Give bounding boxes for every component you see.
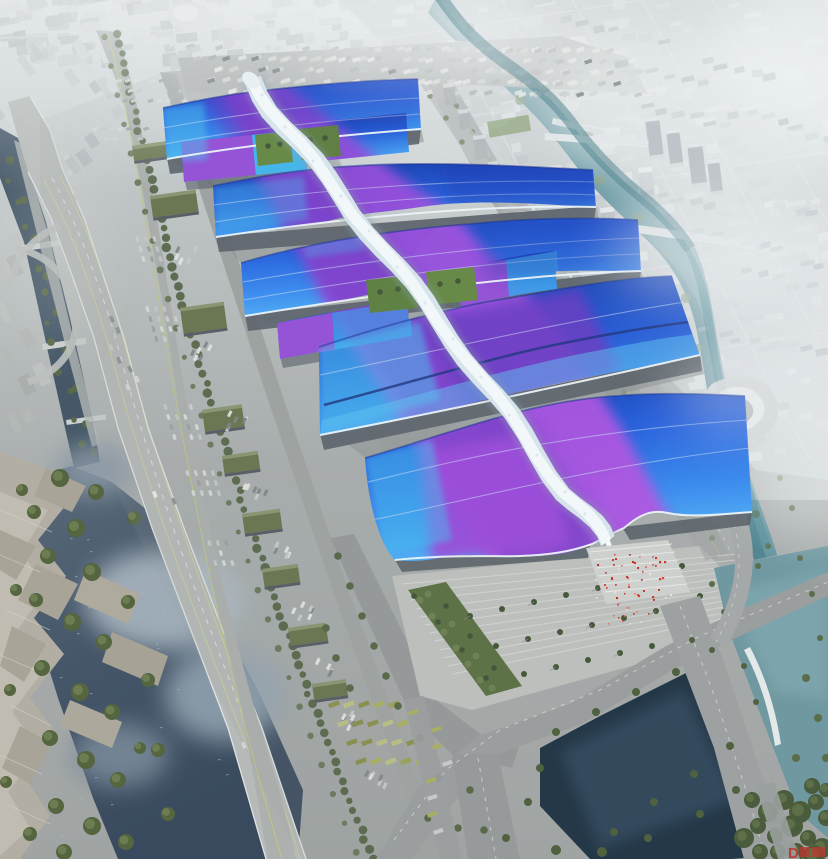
svg-text:D: D: [788, 845, 799, 859]
